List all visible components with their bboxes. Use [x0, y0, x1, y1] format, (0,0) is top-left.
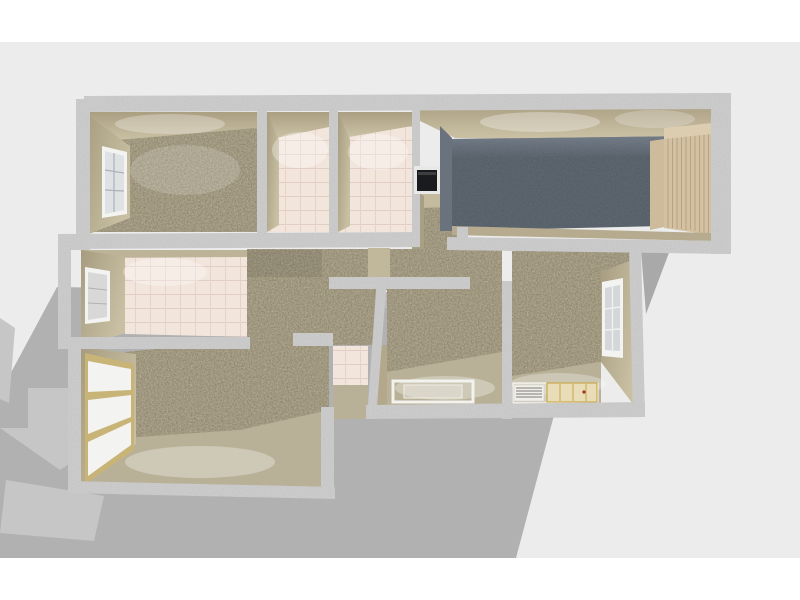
wall-band-bed-bath1	[257, 99, 267, 247]
hallway-beige-corner	[368, 248, 390, 277]
closet-tile-floor	[333, 346, 368, 385]
kitchen-south-band	[58, 337, 250, 349]
garage-west-wall-face	[440, 126, 452, 231]
bathroom2-light-pool	[348, 134, 408, 170]
floor-table-outline-inner	[404, 385, 462, 398]
hallway-carpet-south	[329, 289, 377, 345]
north-wall-band	[84, 93, 725, 112]
garage-wall-light-pool-2	[615, 110, 695, 128]
room-bedroom-top-left	[84, 112, 257, 236]
room-bathroom-2	[338, 112, 412, 232]
wall-band-bath1-bath2	[329, 99, 338, 247]
room-bathroom-1	[267, 112, 329, 232]
bathroom1-light-pool	[272, 132, 328, 168]
garage-east-band	[711, 93, 731, 254]
west-wall-band-3	[68, 337, 81, 492]
room-kitchen-left	[81, 250, 247, 347]
living-light-pool	[125, 446, 275, 478]
kitchen-cabinet-outline	[513, 383, 598, 403]
west-wall-band-1	[76, 99, 90, 247]
wall-appliance	[414, 166, 440, 194]
garage-wall-light-pool-1	[480, 112, 600, 132]
hallway-south-band	[329, 277, 470, 289]
appliance-vent	[418, 172, 436, 175]
room-garage	[420, 103, 725, 241]
cabinet-grate	[514, 385, 544, 401]
floorplan-svg	[0, 0, 800, 600]
living-east-wall-band	[321, 407, 334, 497]
kitchen-window-glass	[88, 272, 107, 320]
bedroom-wall-light-pool	[115, 114, 225, 134]
floorplan-render-canvas	[0, 0, 800, 600]
room-bottom-center	[387, 289, 502, 407]
cabinet-red-dot	[582, 390, 585, 393]
garage-door-frame	[650, 139, 664, 230]
garage-door-slatted	[664, 128, 712, 235]
kitchen-light-pool	[123, 258, 207, 286]
cabinet-counter	[547, 383, 597, 402]
closet-beige-floor	[333, 385, 368, 419]
stub-wall-band	[293, 333, 333, 346]
bedroom-floor-light-pool	[130, 145, 240, 195]
west-wall-band-2	[58, 238, 71, 349]
center-east-wall-band	[502, 281, 512, 419]
top-rooms-south-band	[58, 232, 420, 249]
